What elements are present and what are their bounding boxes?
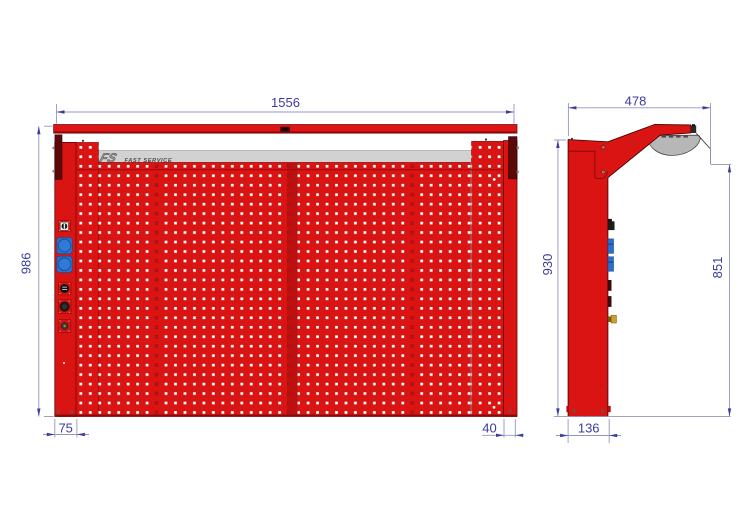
svg-text:478: 478 — [625, 94, 647, 109]
svg-text:136: 136 — [578, 420, 600, 435]
svg-text:40: 40 — [482, 420, 496, 435]
svg-text:1556: 1556 — [271, 95, 300, 110]
svg-text:851: 851 — [710, 257, 725, 279]
svg-text:930: 930 — [540, 254, 555, 276]
svg-text:986: 986 — [19, 253, 34, 275]
svg-text:75: 75 — [58, 420, 72, 435]
